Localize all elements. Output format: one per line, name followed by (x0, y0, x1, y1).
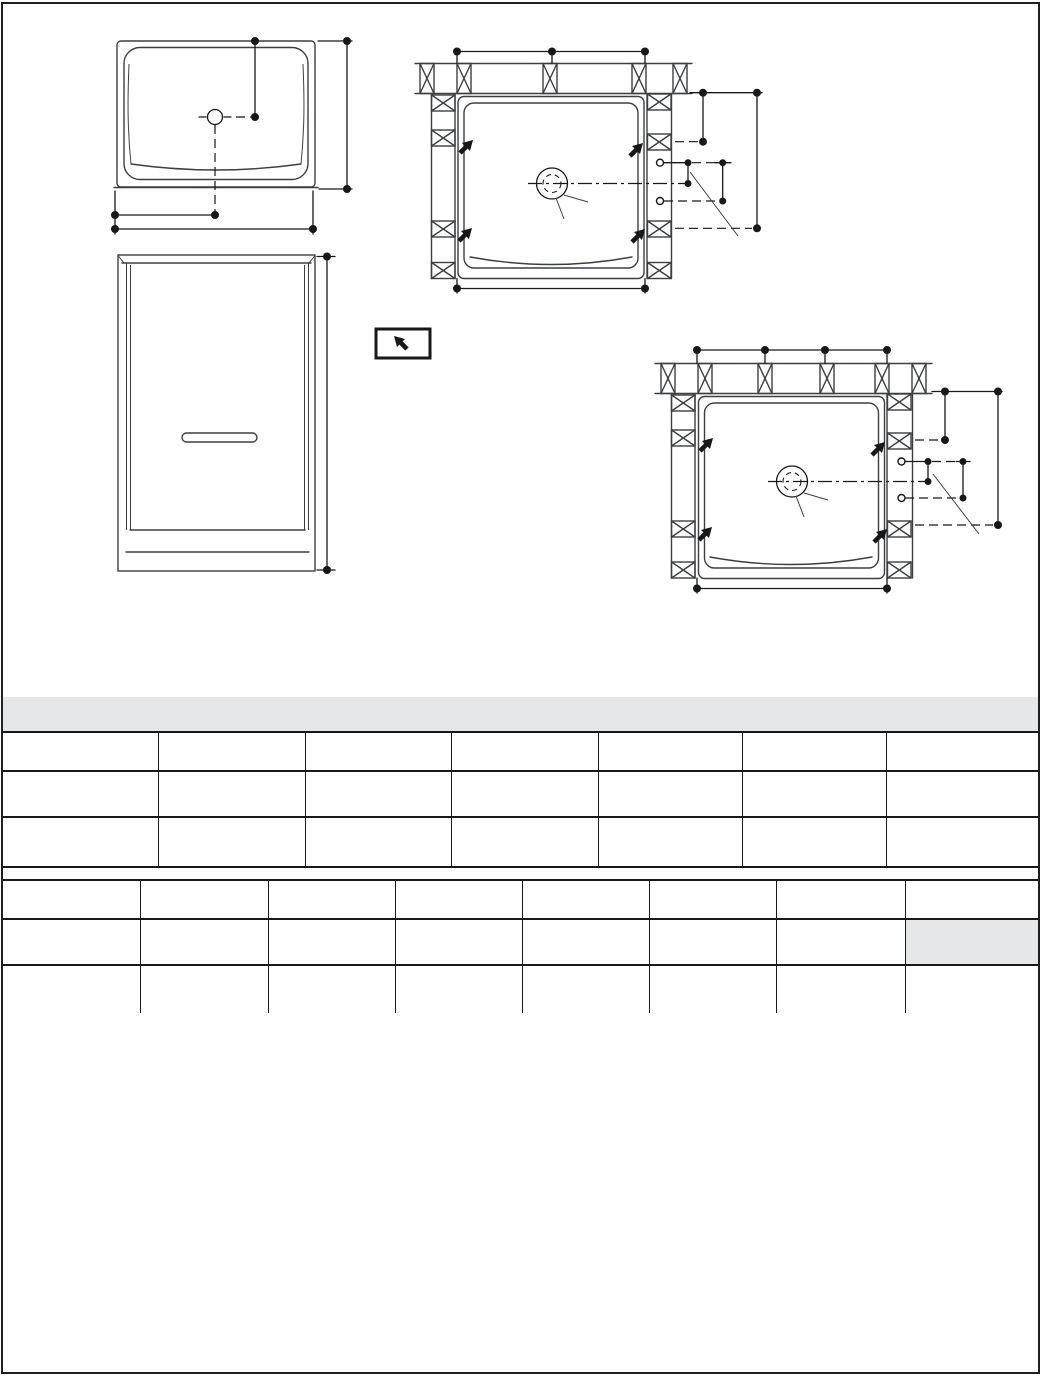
stud-icon (457, 64, 471, 94)
table-row (3, 881, 1038, 920)
stud-icon (648, 134, 672, 150)
drain-symbol (199, 110, 231, 214)
table-cell (3, 881, 141, 918)
apron-curve (131, 164, 301, 170)
dim-bottom-widths (111, 191, 317, 234)
attachment-arrow-icon (460, 140, 473, 153)
apron-curve (470, 257, 632, 265)
attachment-arrow-icon (459, 228, 472, 241)
mounting-hole-icon (657, 159, 664, 166)
table-cell (523, 966, 650, 1013)
stud-icon (661, 364, 675, 394)
dim-right-cluster (898, 388, 1002, 535)
framing-plan-drawing-2 (655, 346, 1002, 593)
table-cell (887, 772, 1038, 816)
stud-icon (672, 562, 696, 578)
table-cell (906, 881, 1038, 918)
stud-icon (888, 562, 912, 578)
table-cell (3, 733, 159, 770)
drain-symbol (528, 168, 690, 219)
drain-symbol (768, 466, 930, 517)
dim-drain-offset-vertical (236, 37, 259, 121)
dim-bottom-width (693, 578, 891, 593)
stud-icon (648, 221, 672, 237)
stud-icon (758, 364, 772, 394)
table-cell (599, 733, 743, 770)
stud-icon (820, 364, 834, 394)
table-cell (3, 772, 159, 816)
apron-curve (710, 557, 872, 565)
stud-icon (672, 521, 696, 537)
table-cell (396, 881, 523, 918)
table-row (3, 772, 1038, 818)
mounting-hole-icon (898, 458, 905, 465)
table-row (3, 733, 1038, 772)
table-cell (650, 966, 777, 1013)
table-cell (396, 920, 523, 964)
stud-icon (432, 263, 456, 279)
table-cell (269, 966, 396, 1013)
table-cell (906, 966, 1038, 1013)
table-cell (141, 966, 269, 1013)
stud-icon (420, 64, 434, 94)
spec-sheet-page (0, 0, 1041, 1377)
attachment-arrow-icon (699, 527, 712, 540)
table-cell (777, 966, 906, 1013)
table-cell (141, 920, 269, 964)
framing-plan-drawing-1 (415, 48, 762, 294)
table-cell (306, 733, 452, 770)
table-cell (887, 818, 1038, 866)
stud-icon (888, 433, 912, 449)
dim-top-width (453, 48, 649, 64)
table-cell (269, 881, 396, 918)
table-cell (269, 920, 396, 964)
stud-icon (672, 430, 696, 446)
table-cell (743, 818, 887, 866)
table-row (3, 818, 1038, 868)
front-elevation-drawing (118, 253, 335, 575)
attachment-arrow-legend (376, 329, 430, 358)
table-cell (599, 772, 743, 816)
spec-table-lower (3, 879, 1038, 1015)
legend-arrow-icon (394, 336, 407, 349)
stud-icon (672, 395, 696, 411)
dim-right-cluster (657, 89, 763, 236)
stud-icon (432, 130, 456, 146)
table-cell (159, 818, 306, 866)
table-cell (452, 818, 599, 866)
table-cell (777, 920, 906, 964)
attachment-arrow-icon (630, 143, 643, 156)
dim-top-width (693, 346, 891, 363)
table-cell (599, 818, 743, 866)
dim-overall-height (317, 253, 335, 575)
table-cell (887, 733, 1038, 770)
spec-table-upper (3, 731, 1038, 868)
table-cell (777, 881, 906, 918)
notes-area (3, 1013, 1038, 1372)
table-cell (452, 772, 599, 816)
stud-icon (432, 221, 456, 237)
stud-icon (648, 263, 672, 279)
stud-icon (912, 364, 926, 394)
stud-icon (543, 64, 557, 94)
stud-icon (875, 364, 889, 394)
mounting-hole-icon (657, 198, 664, 205)
table-cell (396, 966, 523, 1013)
table-note-row (3, 866, 1038, 879)
table-cell (306, 772, 452, 816)
table-cell (452, 733, 599, 770)
table-cell (159, 772, 306, 816)
stud-icon (888, 521, 912, 537)
stud-icon (432, 95, 456, 111)
stud-icon (888, 394, 912, 410)
table-cell (906, 920, 1038, 964)
mounting-hole-icon (898, 495, 905, 502)
dim-bottom-width (453, 279, 649, 294)
table-row (3, 920, 1038, 966)
table-cell (141, 881, 269, 918)
stud-icon (632, 64, 646, 94)
ledge-slot (182, 433, 257, 442)
table-cell (3, 966, 141, 1013)
table-cell (523, 881, 650, 918)
table-row (3, 966, 1038, 1015)
table-cell (650, 881, 777, 918)
table-cell (306, 818, 452, 866)
table-title-band (3, 697, 1038, 731)
stud-icon (698, 364, 712, 394)
dim-overall-depth (318, 37, 352, 193)
base-plan-view-drawing (111, 37, 352, 234)
technical-drawings (0, 0, 1041, 696)
table-cell (743, 772, 887, 816)
stud-icon (673, 64, 687, 94)
table-cell (3, 818, 159, 866)
stud-icon (648, 94, 672, 110)
table-cell (3, 920, 141, 964)
attachment-arrow-icon (700, 438, 713, 451)
table-cell (650, 920, 777, 964)
table-cell (743, 733, 887, 770)
table-cell (523, 920, 650, 964)
table-cell (159, 733, 306, 770)
